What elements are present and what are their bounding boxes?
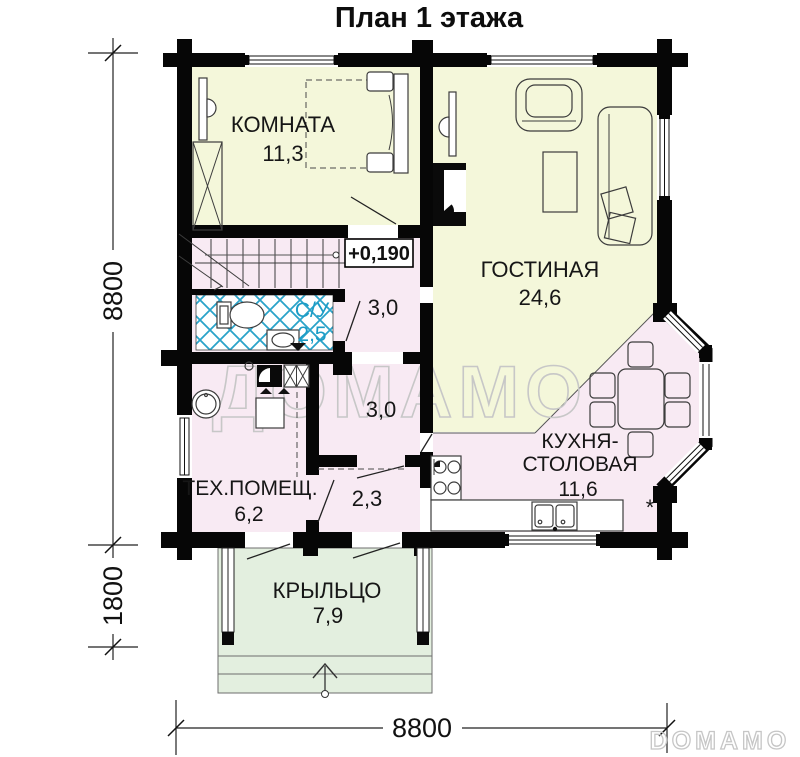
- hall-mid-area: 3,0: [366, 397, 397, 422]
- log-joint: [672, 532, 688, 548]
- fireplace-icon: [433, 163, 466, 226]
- toilet-icon: [217, 302, 264, 328]
- elevation-marker: +0,190: [345, 239, 413, 267]
- living-label: ГОСТИНАЯ: [481, 257, 600, 282]
- log-joint: [412, 40, 433, 54]
- bathroom-area: 2,5: [297, 323, 326, 346]
- hall-lower-area: 2,3: [352, 486, 383, 511]
- dimension-side-porch: 1800: [98, 566, 128, 626]
- window-living-top: [487, 53, 597, 67]
- dimension-side-total: 8800: [98, 261, 128, 321]
- log-joint: [177, 548, 192, 560]
- kitchen-label-2: СТОЛОВАЯ: [522, 453, 637, 476]
- tech-area: 6,2: [234, 503, 263, 526]
- log-joint: [161, 532, 177, 548]
- kitchen-counter: [431, 500, 623, 531]
- log-joint: [177, 39, 192, 53]
- bay-window-right: [699, 362, 713, 438]
- window-living-right: [657, 115, 672, 200]
- floor-plan-page: План 1 этажа ДОМАМО: [0, 0, 800, 757]
- log-joint: [161, 350, 177, 366]
- hall-entry-area: 3,0: [368, 295, 399, 320]
- porch-column: [417, 632, 429, 645]
- footnote-asterisk: *: [646, 495, 655, 520]
- door-swing-kitchen: [421, 434, 432, 452]
- floor-plan-canvas: План 1 этажа ДОМАМО: [0, 0, 800, 757]
- log-joint: [657, 39, 672, 53]
- window-kitchen-bottom: [505, 532, 600, 548]
- porch-label: КРЫЛЬЦО: [273, 578, 382, 603]
- tech-label: ТЕХ.ПОМЕЩ.: [182, 477, 317, 500]
- bathroom-label: С/У: [295, 299, 330, 322]
- bedroom-area: 11,3: [262, 141, 303, 166]
- window-tech-left: [177, 415, 192, 478]
- log-joint: [653, 486, 677, 503]
- stove-icon: [431, 456, 461, 500]
- living-area: 24,6: [519, 285, 562, 310]
- porch-column: [222, 632, 234, 645]
- log-joint: [303, 548, 318, 556]
- page-title: План 1 этажа: [335, 2, 524, 34]
- kitchen-label-1: КУХНЯ-: [541, 430, 618, 453]
- kitchen-area: 11,6: [558, 478, 597, 501]
- porch-area: 7,9: [313, 603, 344, 628]
- svg-text:+0,190: +0,190: [348, 243, 410, 265]
- bedroom-label: КОМНАТА: [231, 112, 336, 137]
- kitchen-sink-icon: [532, 502, 577, 531]
- watermark-corner: DOMAMO: [650, 727, 791, 755]
- window-bedroom-top: [245, 53, 338, 67]
- electrical-panel-icon: [284, 365, 309, 387]
- log-joint: [657, 548, 672, 560]
- dimension-bottom-total: 8800: [392, 713, 452, 743]
- stove-boiler-icon: [257, 365, 282, 387]
- desk-icon: [256, 398, 284, 428]
